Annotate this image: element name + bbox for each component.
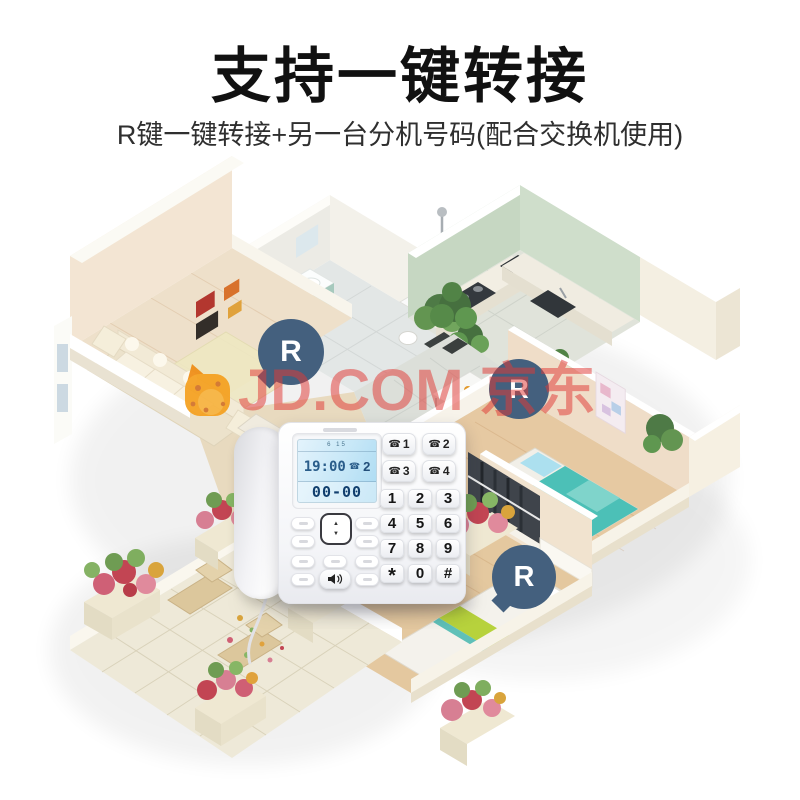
function-button — [355, 573, 379, 586]
function-button — [323, 555, 347, 568]
lcd-call-count: 2 — [363, 459, 370, 474]
function-button — [355, 517, 379, 530]
key-5: 5 — [408, 514, 432, 533]
brand-mark — [323, 428, 357, 432]
function-button — [291, 555, 315, 568]
handset-icon: ☎ — [428, 439, 440, 450]
memory-keys: ☎ 1 ☎ 2 ☎ 3 ☎ 4 — [382, 433, 458, 482]
function-button — [291, 517, 315, 530]
handset-icon: ☎ — [428, 466, 440, 477]
handset-icon: ☎ — [349, 461, 360, 472]
lcd-number: 00-00 — [298, 482, 376, 502]
memory-key-3: ☎ 3 — [382, 460, 416, 482]
up-arrow-icon: ▲ — [333, 521, 339, 527]
handset-icon: ☎ — [388, 439, 400, 450]
speaker-icon — [327, 573, 343, 585]
jd-watermark: JD.COM 京东 — [178, 360, 596, 422]
page: 支持一键转接 R键一键转接+另一台分机号码(配合交换机使用) 6 15 19:0… — [0, 0, 800, 800]
speaker-button — [319, 569, 351, 589]
handset-icon: ☎ — [388, 466, 400, 477]
function-button — [291, 573, 315, 586]
key-6: 6 — [436, 514, 460, 533]
memory-key-4: ☎ 4 — [422, 460, 456, 482]
function-controls: ▲ ▼ — [291, 513, 377, 597]
key-2: 2 — [408, 489, 432, 508]
key-1: 1 — [380, 489, 404, 508]
nav-button: ▲ ▼ — [320, 513, 352, 545]
key-9: 9 — [436, 539, 460, 558]
jd-joy-dog-icon — [178, 360, 236, 422]
down-arrow-icon: ▼ — [333, 531, 339, 537]
phone-body: 6 15 19:00 ☎ 2 00-00 ☎ 1 ☎ 2 ☎ — [278, 422, 466, 604]
landline-phone: 6 15 19:00 ☎ 2 00-00 ☎ 1 ☎ 2 ☎ — [234, 422, 464, 604]
phone-screen: 6 15 19:00 ☎ 2 00-00 — [292, 433, 382, 509]
watermark-text: JD.COM 京东 — [238, 362, 596, 420]
key-7: 7 — [380, 539, 404, 558]
transfer-badge-bedroom: R — [492, 545, 556, 609]
key-0: 0 — [408, 564, 432, 583]
page-subtitle: R键一键转接+另一台分机号码(配合交换机使用) — [0, 113, 800, 152]
number-keypad: 1 2 3 4 5 6 7 8 9 * 0 # — [380, 489, 460, 583]
key-hash: # — [436, 564, 460, 583]
key-3: 3 — [436, 489, 460, 508]
key-8: 8 — [408, 539, 432, 558]
key-star: * — [380, 564, 404, 583]
annex-room — [640, 253, 740, 360]
lcd-main-row: 19:00 ☎ 2 — [298, 452, 376, 482]
memory-key-2: ☎ 2 — [422, 433, 456, 455]
function-button — [291, 535, 315, 548]
function-button — [355, 555, 379, 568]
memory-key-1: ☎ 1 — [382, 433, 416, 455]
lcd-date-row: 6 15 — [298, 440, 376, 452]
lcd-time: 19:00 — [304, 459, 346, 475]
lcd-display: 6 15 19:00 ☎ 2 00-00 — [297, 439, 377, 503]
function-button — [355, 535, 379, 548]
key-4: 4 — [380, 514, 404, 533]
page-title: 支持一键转接 — [0, 28, 800, 115]
